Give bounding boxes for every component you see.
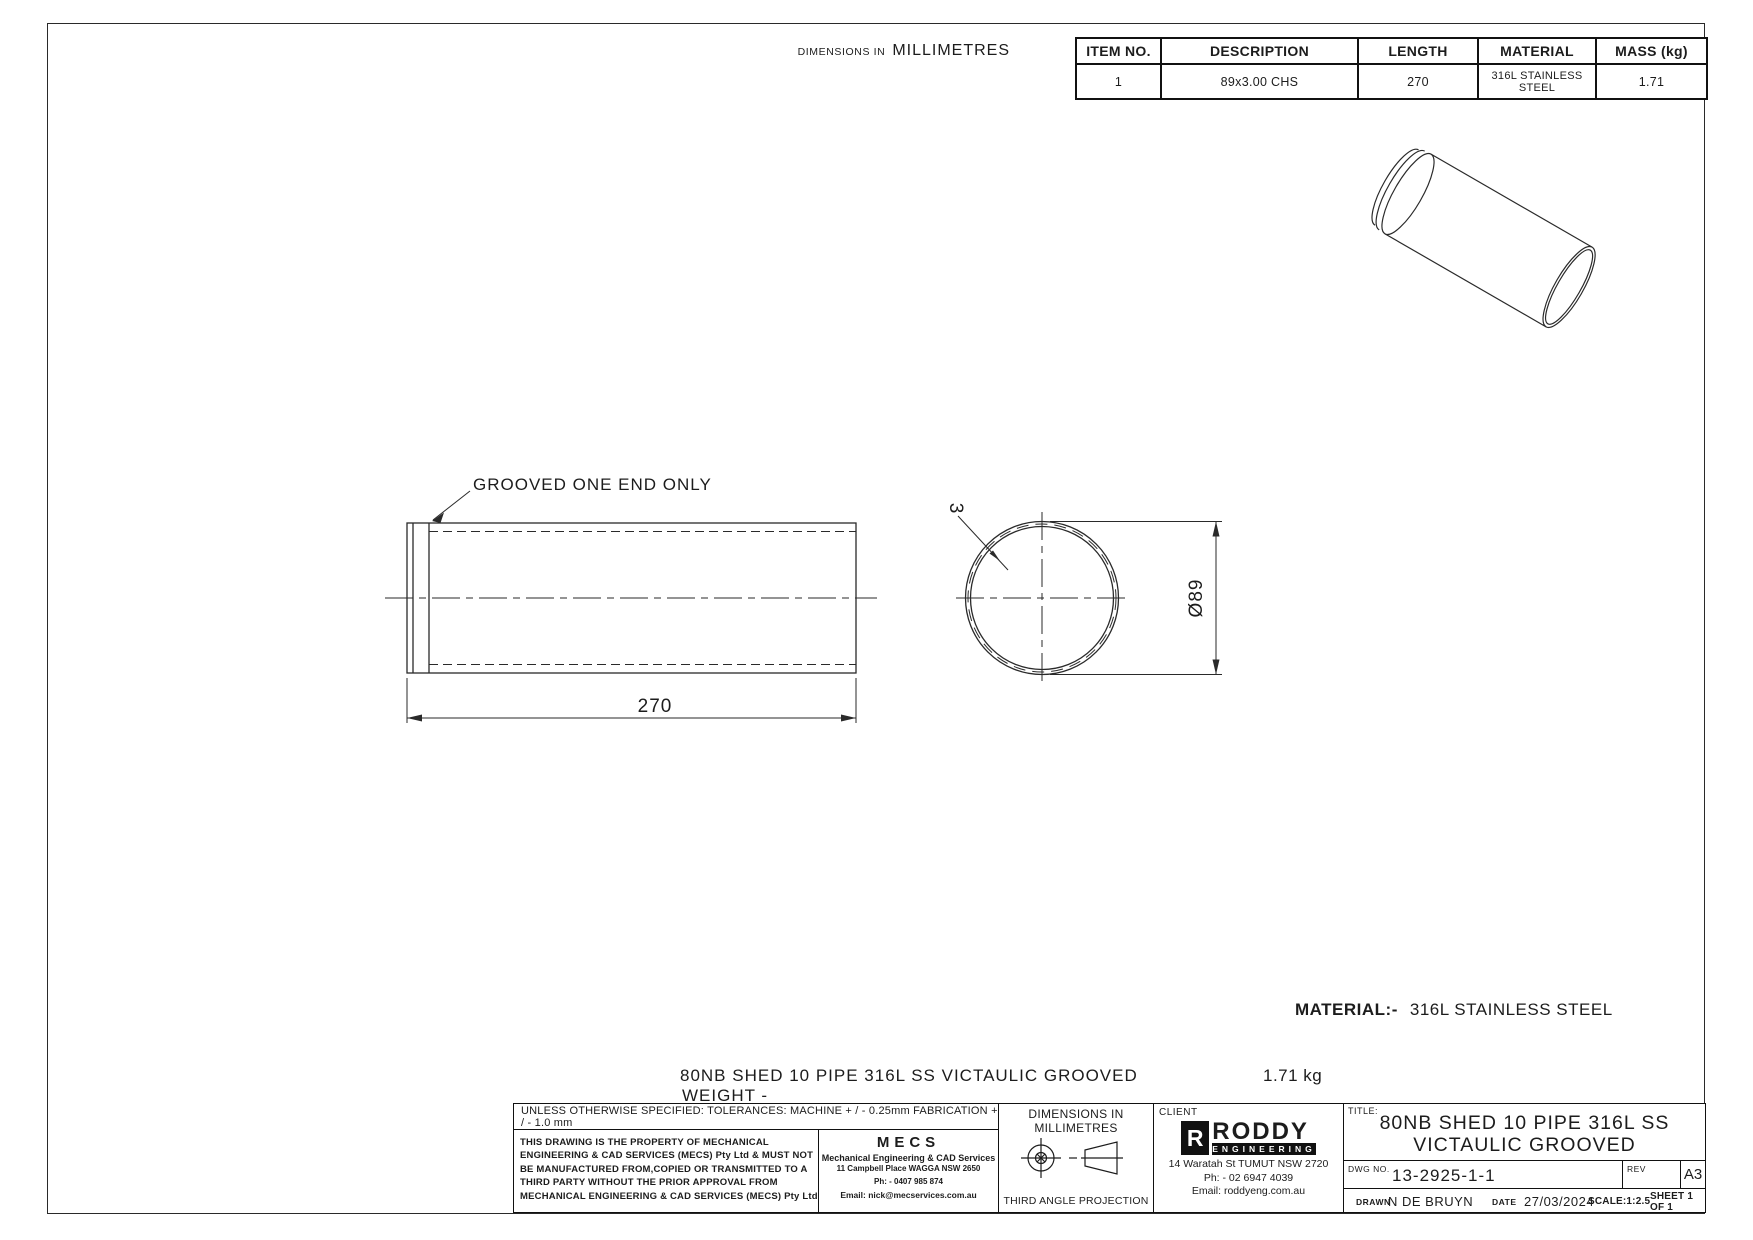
col-header-item-no: ITEM NO.: [1076, 38, 1161, 64]
date-label: DATE: [1492, 1189, 1517, 1214]
wall-thickness-dim-text: 3: [945, 503, 966, 514]
diameter-dim-text: Ø89: [1186, 579, 1207, 618]
property-line: MECHANICAL ENGINEERING & CAD SERVICES (M…: [520, 1190, 818, 1203]
drawing-sheet: 270 GROOVED ONE END ONLY Ø89 3 DIMENSION…: [0, 0, 1753, 1240]
client-cell: CLIENT R RODDY ENGINEERING 14 Waratah St…: [1153, 1103, 1344, 1213]
rev-label: REV: [1627, 1164, 1646, 1174]
property-line: THIS DRAWING IS THE PROPERTY OF MECHANIC…: [520, 1136, 818, 1149]
weight-value: 1.71 kg: [1263, 1066, 1322, 1086]
property-notice-cell: THIS DRAWING IS THE PROPERTY OF MECHANIC…: [513, 1129, 819, 1213]
groove-leader: [432, 491, 470, 523]
property-line: BE MANUFACTURED FROM,COPIED OR TRANSMITT…: [520, 1163, 818, 1176]
third-angle-projection-icon: [1013, 1135, 1139, 1181]
isometric-view: [1362, 141, 1604, 334]
drawn-label: DRAWN: [1356, 1189, 1391, 1214]
table-row-mass: 1.71: [1596, 64, 1707, 99]
mecs-line1: Mechanical Engineering & CAD Services: [819, 1153, 998, 1163]
sheet-value: SHEET 1 OF 1: [1650, 1189, 1705, 1214]
drawn-value: N DE BRUYN: [1388, 1189, 1473, 1214]
roddy-name: RODDY: [1212, 1121, 1316, 1143]
drawing-title-line1: 80NB SHED 10 PIPE 316L SS: [1344, 1112, 1705, 1134]
material-note-label: MATERIAL:-: [1295, 1000, 1398, 1020]
weight-label: WEIGHT -: [682, 1086, 768, 1106]
table-row-length: 270: [1358, 64, 1478, 99]
title-block: UNLESS OTHERWISE SPECIFIED: TOLERANCES: …: [513, 1103, 1706, 1213]
scale-value: SCALE:1:2.5: [1588, 1189, 1650, 1214]
end-view: [956, 512, 1128, 684]
projection-dims-line1: DIMENSIONS IN: [999, 1108, 1153, 1122]
parts-table: ITEM NO. DESCRIPTION LENGTH MATERIAL MAS…: [1075, 37, 1708, 100]
projection-dims-line2: MILLIMETRES: [999, 1122, 1153, 1136]
title-cell: TITLE: 80NB SHED 10 PIPE 316L SS VICTAUL…: [1343, 1103, 1706, 1161]
drawing-title-line2: VICTAULIC GROOVED: [1344, 1134, 1705, 1156]
dims-note-large: MILLIMETRES: [892, 42, 1010, 60]
wall-thickness-leader: [958, 516, 1008, 570]
dwg-no-value: 13-2925-1-1: [1392, 1166, 1496, 1186]
length-dim-text: 270: [638, 696, 673, 717]
cad-linework: 270 GROOVED ONE END ONLY Ø89 3: [0, 0, 1753, 1240]
roddy-subtitle: ENGINEERING: [1212, 1143, 1316, 1155]
dwg-no-cell: DWG NO. 13-2925-1-1: [1343, 1160, 1623, 1189]
col-header-length: LENGTH: [1358, 38, 1478, 64]
client-phone: Ph: - 02 6947 4039: [1154, 1172, 1343, 1186]
mecs-cell: MECS Mechanical Engineering & CAD Servic…: [818, 1129, 999, 1213]
mecs-line2: 11 Campbell Place WAGGA NSW 2650: [819, 1164, 998, 1173]
client-email: Email: roddyeng.com.au: [1154, 1185, 1343, 1199]
property-line: THIRD PARTY WITHOUT THE PRIOR APPROVAL F…: [520, 1176, 818, 1189]
description-note: 80NB SHED 10 PIPE 316L SS VICTAULIC GROO…: [680, 1066, 1138, 1086]
col-header-description: DESCRIPTION: [1161, 38, 1358, 64]
table-row-item-no: 1: [1076, 64, 1161, 99]
client-address: 14 Waratah St TUMUT NSW 2720: [1154, 1158, 1343, 1172]
date-value: 27/03/2024: [1524, 1189, 1594, 1214]
length-dimension: [407, 678, 856, 723]
rev-cell: REV: [1622, 1160, 1681, 1189]
mecs-logo: MECS: [819, 1134, 998, 1151]
property-line: ENGINEERING & CAD SERVICES (MECS) Pty Lt…: [520, 1149, 818, 1162]
projection-label: THIRD ANGLE PROJECTION: [999, 1195, 1153, 1207]
projection-cell: DIMENSIONS IN MILLIMETRES THIRD ANGLE PR…: [998, 1103, 1154, 1213]
client-label: CLIENT: [1159, 1107, 1198, 1118]
roddy-r-icon: R: [1181, 1121, 1209, 1155]
title-label: TITLE:: [1348, 1106, 1378, 1116]
tolerances-cell: UNLESS OTHERWISE SPECIFIED: TOLERANCES: …: [513, 1103, 999, 1130]
table-row-material: 316L STAINLESS STEEL: [1478, 64, 1596, 99]
side-view: [385, 523, 877, 673]
top-dimensions-note: DIMENSIONS IN MILLIMETRES: [690, 42, 1010, 60]
dims-note-small: DIMENSIONS IN: [798, 46, 886, 58]
roddy-logo: R RODDY ENGINEERING: [1154, 1121, 1343, 1155]
table-row-description: 89x3.00 CHS: [1161, 64, 1358, 99]
dwg-no-label: DWG NO.: [1348, 1164, 1390, 1174]
material-note: MATERIAL:- 316L STAINLESS STEEL: [1295, 1000, 1613, 1020]
mecs-email: Email: nick@mecservices.com.au: [819, 1190, 998, 1200]
signature-row: DRAWN N DE BRUYN DATE 27/03/2024 SCALE:1…: [1343, 1188, 1706, 1213]
col-header-mass: MASS (kg): [1596, 38, 1707, 64]
mecs-phone: Ph: - 0407 985 874: [819, 1177, 998, 1186]
groove-note-text: GROOVED ONE END ONLY: [473, 475, 712, 494]
sheet-size-cell: A3: [1680, 1160, 1706, 1189]
col-header-material: MATERIAL: [1478, 38, 1596, 64]
material-note-value: 316L STAINLESS STEEL: [1410, 1000, 1613, 1020]
